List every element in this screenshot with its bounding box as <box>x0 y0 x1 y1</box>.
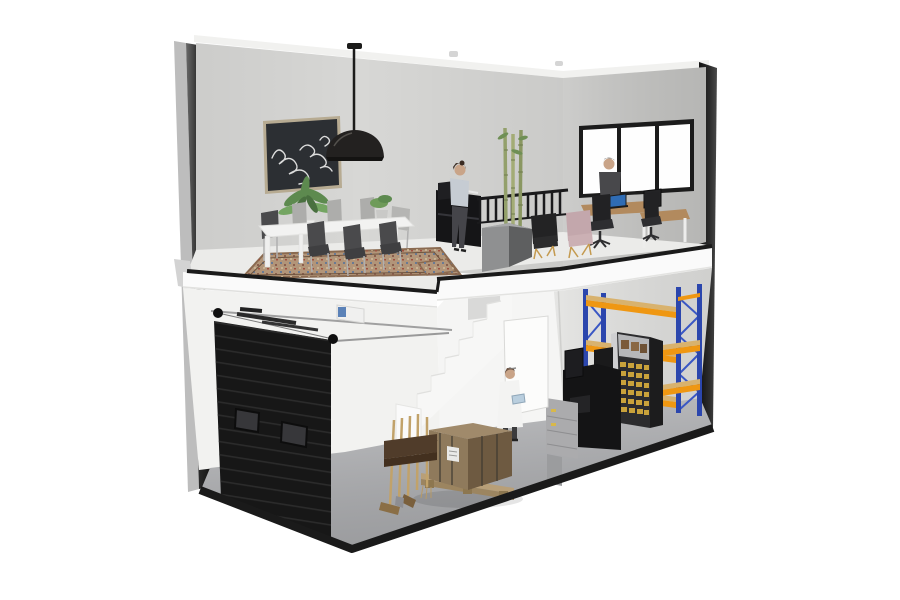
monitor-screen <box>565 348 583 379</box>
woman-hair-bun <box>460 161 465 166</box>
chair-back <box>592 194 611 224</box>
crate-label <box>447 446 459 462</box>
man-head <box>604 159 615 170</box>
woman-shoe <box>461 250 466 251</box>
lower-warehouse <box>183 268 713 549</box>
roof-vent <box>555 61 563 66</box>
woman-head <box>455 165 466 176</box>
stored-box <box>631 342 639 351</box>
floor-trim-jog <box>437 279 439 292</box>
chair-leg <box>328 253 329 269</box>
stored-box <box>621 340 629 349</box>
bamboo-stalk <box>505 128 506 233</box>
office-window <box>579 119 694 198</box>
woman-shirt <box>450 178 469 207</box>
stored-box <box>640 344 647 353</box>
chair-back <box>644 192 659 220</box>
door-window <box>281 422 307 447</box>
chair-leg <box>383 254 384 270</box>
building-cutaway <box>0 0 900 600</box>
plinth-left-face <box>482 223 509 272</box>
lamp-shade-rim <box>326 157 384 161</box>
worker-leg <box>512 427 517 439</box>
rendered-scene <box>0 0 900 600</box>
window-pane <box>621 126 655 192</box>
chair-leg <box>311 256 312 272</box>
bamboo-stalk <box>520 130 521 235</box>
roof-vent <box>449 51 458 57</box>
table-leg <box>265 236 270 267</box>
drawer-label <box>551 423 556 426</box>
drawer-label <box>551 409 556 412</box>
worker-coat <box>497 380 523 429</box>
opener-lens <box>338 307 346 317</box>
chair-leg <box>407 231 408 248</box>
door-window <box>235 409 259 432</box>
window-pane <box>659 124 690 189</box>
upper-office <box>188 43 712 292</box>
open-cabinet-door <box>650 337 663 428</box>
door-pulley <box>213 308 223 318</box>
chair-leg <box>347 259 348 276</box>
door-ribs <box>214 321 331 540</box>
chair-leg <box>364 256 365 273</box>
chair-leg <box>400 251 401 267</box>
woman-shoe <box>454 249 459 250</box>
table-leg <box>299 234 303 263</box>
cabinet-body <box>546 398 578 459</box>
plant-pot <box>376 210 388 218</box>
roller-door <box>214 321 331 540</box>
worker-tablet <box>512 394 525 404</box>
laptop <box>609 194 628 208</box>
plant-leaves <box>378 195 392 203</box>
door-pulley <box>328 334 338 344</box>
